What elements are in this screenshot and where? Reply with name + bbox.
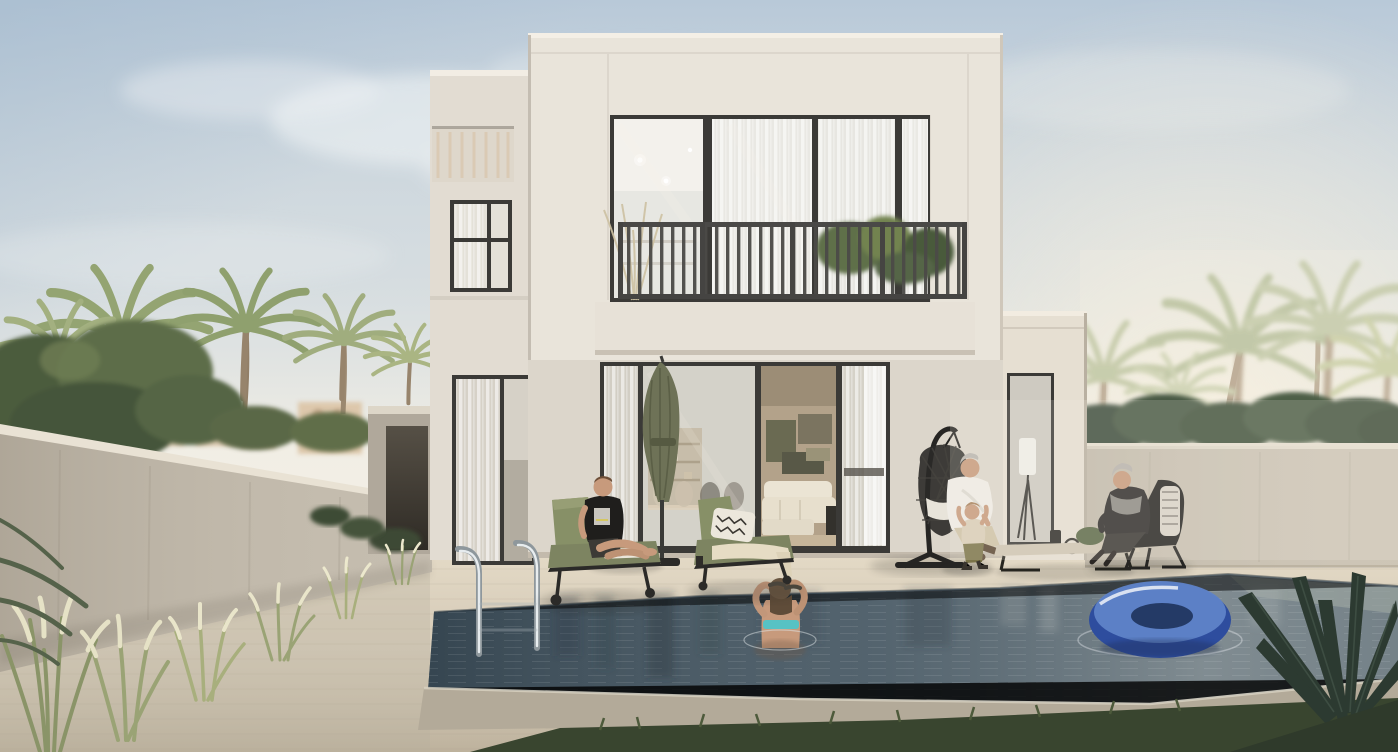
ground-left-window <box>452 375 536 565</box>
horizon-haze <box>950 400 1398 560</box>
glass-panel-right <box>842 366 886 549</box>
villa-main-block <box>528 33 1003 360</box>
balcony-slab <box>595 302 975 354</box>
zigzag-pillow <box>710 507 756 543</box>
scene-image <box>0 0 1398 752</box>
interior-side-table <box>826 506 837 538</box>
drink-cup <box>696 556 703 566</box>
open-doorway-interior <box>761 366 837 549</box>
balcony <box>595 222 975 355</box>
upper-left-window <box>450 200 512 292</box>
swimsuit-band <box>763 620 799 629</box>
shirt-graphic <box>594 508 610 525</box>
balcony-railing <box>618 222 967 299</box>
villa-left-wing <box>430 70 536 565</box>
villa-pool-render <box>0 0 1398 752</box>
umbrella-pole <box>660 500 664 560</box>
